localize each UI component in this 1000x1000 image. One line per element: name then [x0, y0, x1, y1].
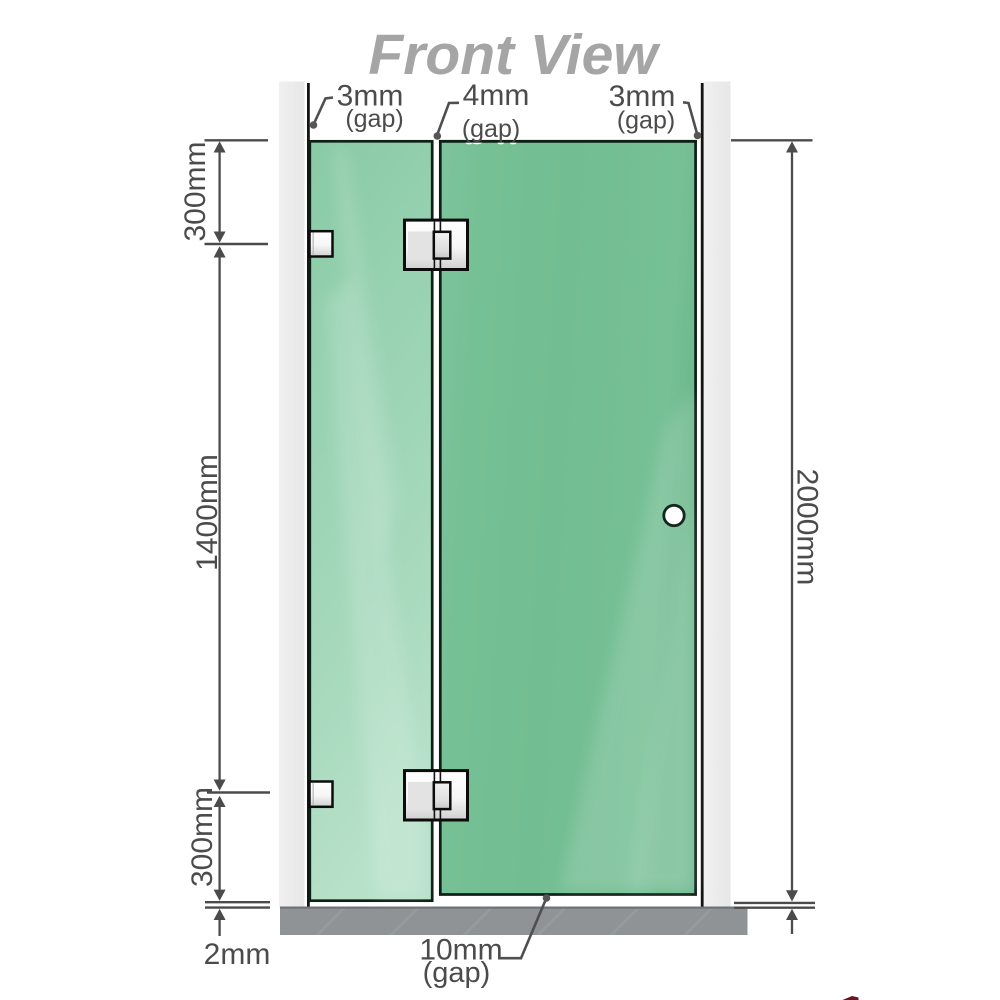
svg-text:(gap): (gap)	[617, 107, 675, 135]
svg-text:2mm: 2mm	[204, 938, 271, 971]
svg-text:(gap): (gap)	[345, 105, 403, 133]
svg-text:Front View: Front View	[368, 23, 661, 87]
svg-text:4mm: 4mm	[463, 79, 530, 112]
svg-text:300mm: 300mm	[186, 787, 219, 887]
svg-text:(gap): (gap)	[462, 115, 520, 143]
svg-text:(gap): (gap)	[423, 957, 491, 989]
svg-text:300mm: 300mm	[179, 141, 212, 241]
svg-text:1400mm: 1400mm	[191, 454, 224, 571]
svg-text:2000mm: 2000mm	[791, 469, 824, 586]
